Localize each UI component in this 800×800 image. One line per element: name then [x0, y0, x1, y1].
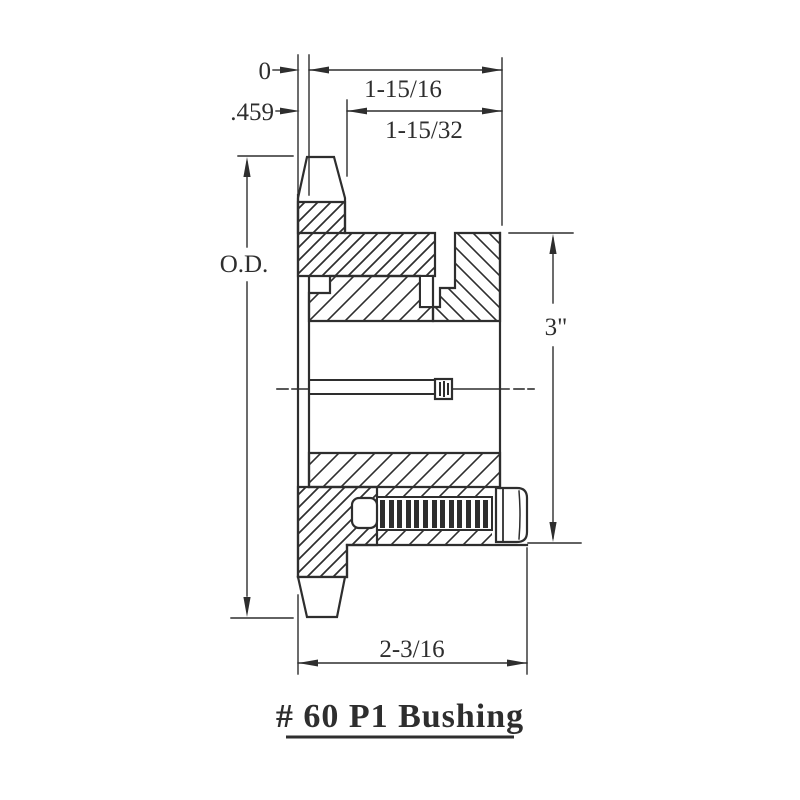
- sprocket-section: [277, 157, 534, 617]
- screw-boss-lower: [377, 530, 492, 545]
- screw-boss-upper: [377, 487, 492, 497]
- screw-tip: [352, 498, 377, 528]
- dim-label-overall-width: 2-3/16: [379, 636, 444, 663]
- keyway-slot: [309, 379, 452, 399]
- page: 0 .459 1-15/16 1-15/32 O.D. 3" 2-3/16 # …: [0, 0, 800, 800]
- bushing-sleeve-upper: [309, 276, 433, 321]
- dim-outer-width: [309, 67, 502, 74]
- dim-offset: [276, 108, 300, 115]
- drawing-title: # 60 P1 Bushing: [276, 698, 524, 735]
- drawing-title-group: # 60 P1 Bushing: [276, 698, 524, 737]
- hex-head: [496, 488, 527, 542]
- dim-od: [243, 157, 250, 617]
- bushing-flange-upper: [433, 233, 500, 321]
- dim-label-offset: .459: [230, 99, 274, 126]
- dim-label-od: O.D.: [220, 251, 269, 278]
- dim-label-flange-od: 3": [545, 314, 568, 341]
- dimensions: [231, 55, 581, 674]
- hub-flange-gap: [421, 277, 432, 306]
- dim-inner-width: [347, 108, 502, 115]
- dim-label-inner-width: 1-15/32: [385, 117, 463, 144]
- technical-drawing-svg: 0 .459 1-15/16 1-15/32 O.D. 3" 2-3/16 # …: [0, 0, 800, 800]
- dim-label-outer-width: 1-15/16: [364, 76, 442, 103]
- dim-label-zero: 0: [259, 58, 272, 85]
- dim-zero: [273, 67, 300, 74]
- tooth-bottom: [298, 577, 345, 617]
- dimension-labels: 0 .459 1-15/16 1-15/32 O.D. 3" 2-3/16: [220, 58, 568, 663]
- bushing-sleeve-lower: [309, 453, 500, 487]
- sprocket-plate-upper: [298, 202, 435, 276]
- dim-flange-od: [549, 234, 556, 542]
